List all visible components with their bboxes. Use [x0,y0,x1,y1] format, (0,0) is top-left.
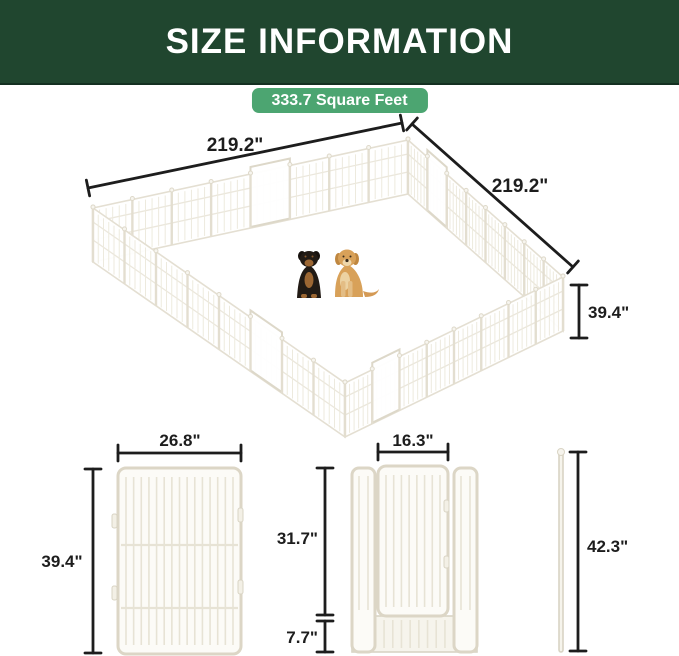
golden-eye [343,256,345,258]
knob2 [558,449,565,456]
fence-wall [343,274,565,437]
door [251,159,290,228]
dimension-line [85,469,101,653]
knob [452,327,456,331]
knob [186,271,190,275]
knob [507,301,511,305]
knob [425,340,429,344]
golden-leg [341,281,346,297]
knob [542,257,546,261]
knob [288,163,292,167]
door [251,310,283,392]
rottweiler-eyebrow [305,256,307,258]
knob [312,358,316,362]
tab [444,556,449,568]
frame2 [559,453,563,652]
frame [352,468,375,652]
knob [91,205,95,209]
knob [154,249,158,253]
knob [327,154,331,158]
fence-wall [91,205,347,437]
panel-height-label: 39.4" [41,552,82,571]
tab [112,586,117,600]
dimline [400,115,403,131]
knob [484,206,488,210]
knob [561,274,565,278]
rottweiler-illustration [297,251,321,298]
door-width-label: 16.3" [392,431,433,450]
golden-leg [348,281,353,297]
tab [238,508,243,522]
dimline [86,180,89,196]
panel-diagrams [112,449,565,655]
door-height-label: 31.7" [277,529,318,548]
panel-width-label: 26.8" [159,431,200,450]
knob [170,188,174,192]
knob [249,314,253,318]
pen-height-label: 39.4" [588,303,629,322]
golden-eye [350,256,352,258]
knob [406,137,410,141]
rottweiler-chest [305,272,314,288]
pen-right-length-label: 219.2" [492,176,549,197]
knob [534,287,538,291]
knob [445,171,449,175]
rottweiler-paw [311,294,317,298]
door [372,350,399,423]
dimension-line [571,285,587,338]
size-diagram: 219.2" 219.2" 39.4" 26.8" 39.4" 16.3" 31… [0,0,679,656]
stake-height-label: 42.3" [587,537,628,556]
dimension-line [317,468,333,615]
knob [425,154,429,158]
knob [343,380,347,384]
tab [238,580,243,594]
rottweiler-paw [301,294,307,298]
golden-nose [345,259,348,262]
size-information-infographic: SIZE INFORMATION 333.7 Square Feet [0,0,679,656]
knob [464,188,468,192]
golden-retriever-illustration [335,250,379,298]
dimension-line [317,621,333,652]
knob [217,293,221,297]
frame [454,468,477,652]
knob [367,146,371,150]
knob [209,180,213,184]
knob [522,240,526,244]
knob [479,314,483,318]
rottweiler-muzzle [305,260,314,267]
knob [130,197,134,201]
knob [370,367,374,371]
knob [249,171,253,175]
golden-tail [363,289,379,297]
frame [378,466,448,616]
tab [444,500,449,512]
pen-left-length-label: 219.2" [207,135,264,156]
dimension-line [570,452,586,651]
tab [112,514,117,528]
knob [123,227,127,231]
door [427,150,446,227]
door-bottom-gap-label: 7.7" [286,628,318,647]
knob [503,223,507,227]
knob [398,354,402,358]
knob [280,336,284,340]
rottweiler-eyebrow [312,256,314,258]
